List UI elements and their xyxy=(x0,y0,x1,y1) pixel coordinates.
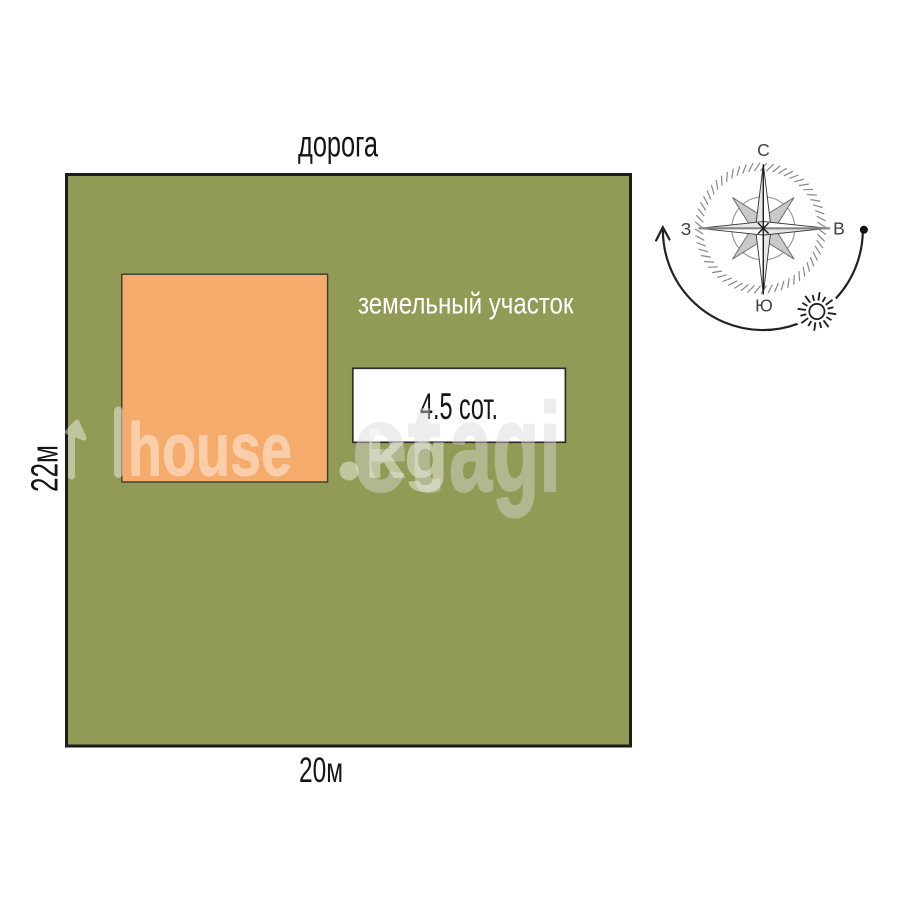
svg-text:house: house xyxy=(128,408,292,492)
svg-text:дорога: дорога xyxy=(298,124,378,165)
svg-text:В: В xyxy=(833,219,845,239)
svg-text:kg: kg xyxy=(365,418,448,492)
svg-text:22м: 22м xyxy=(25,445,67,492)
svg-text:С: С xyxy=(757,140,770,160)
svg-text:agi: agi xyxy=(449,379,561,518)
svg-text:З: З xyxy=(681,219,692,239)
svg-text:Ю: Ю xyxy=(755,296,773,316)
svg-text:земельный участок: земельный участок xyxy=(358,288,574,321)
svg-text:20м: 20м xyxy=(299,751,343,790)
